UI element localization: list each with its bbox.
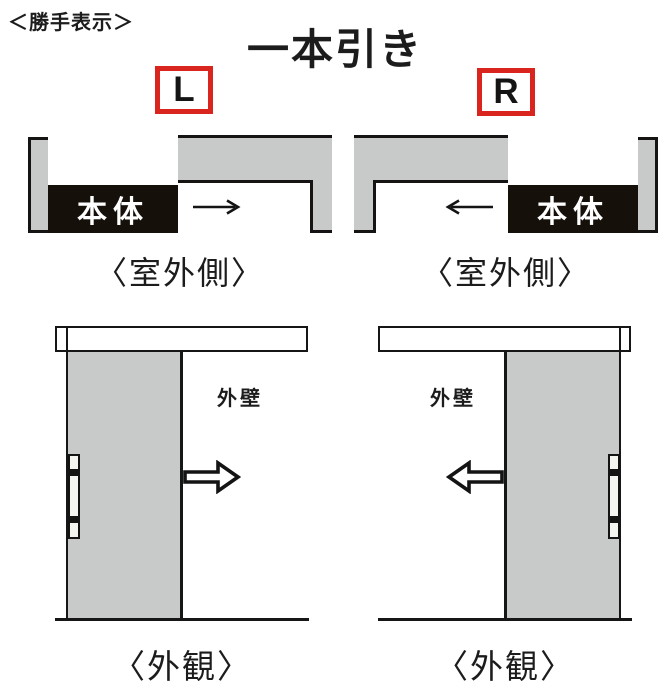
handle-detail — [610, 516, 618, 523]
door-edge-line — [504, 352, 507, 618]
door-body-label: 本体 — [537, 187, 609, 231]
door-panel — [506, 352, 619, 618]
handing-letter-r: R — [493, 72, 518, 112]
ground-line — [55, 618, 309, 621]
door-panel — [68, 352, 181, 618]
pocket-wall-line — [313, 230, 332, 233]
door-body-label: 本体 — [77, 187, 149, 231]
plan-diagram-r: 本体 — [354, 135, 658, 233]
exterior-view-caption-l: 〈外観〉 — [55, 640, 309, 688]
pocket-wall-line — [373, 180, 508, 183]
handing-box-r: R — [477, 68, 535, 116]
elevation-diagram-r: 外壁 — [378, 326, 632, 622]
pocket-wall-line — [354, 230, 373, 233]
exterior-wall-label: 外壁 — [408, 382, 498, 411]
track-rail — [378, 326, 631, 352]
outline-arrow-right-icon — [183, 460, 241, 494]
door-handle-icon — [68, 454, 80, 539]
handle-detail — [70, 516, 78, 523]
wall-jamb — [28, 137, 48, 233]
outdoor-side-caption-r: 〈室外側〉 — [354, 248, 658, 294]
pocket-wall-line — [178, 180, 313, 183]
plan-diagram-l: 本体 — [28, 135, 332, 233]
handle-detail — [70, 469, 78, 476]
ground-line — [378, 618, 632, 621]
outline-arrow-left-icon — [446, 460, 504, 494]
exterior-view-caption-r: 〈外観〉 — [378, 640, 632, 688]
pocket-wall-band — [354, 135, 508, 183]
door-handle-icon — [608, 454, 620, 539]
handle-detail — [610, 469, 618, 476]
door-body-plan: 本体 — [48, 185, 178, 233]
handedness-diagram-page: ＜勝手表示＞ 一本引き L R 本体 本体 — [0, 0, 670, 692]
door-body-plan: 本体 — [508, 185, 638, 233]
pocket-wall-strip — [313, 183, 332, 230]
pocket-wall-line — [373, 183, 376, 233]
pocket-wall-band — [178, 135, 332, 183]
handing-box-l: L — [155, 66, 213, 114]
outdoor-side-caption-l: 〈室外側〉 — [28, 248, 332, 294]
pocket-wall-strip — [354, 183, 373, 230]
elevation-diagram-l: 外壁 — [55, 326, 309, 622]
wall-jamb — [638, 137, 658, 233]
handing-letter-l: L — [173, 70, 194, 110]
exterior-wall-label: 外壁 — [195, 382, 285, 411]
track-rail — [55, 326, 308, 352]
slide-arrow-right-icon — [191, 199, 241, 215]
page-title: 一本引き — [0, 16, 670, 77]
slide-arrow-left-icon — [445, 199, 495, 215]
